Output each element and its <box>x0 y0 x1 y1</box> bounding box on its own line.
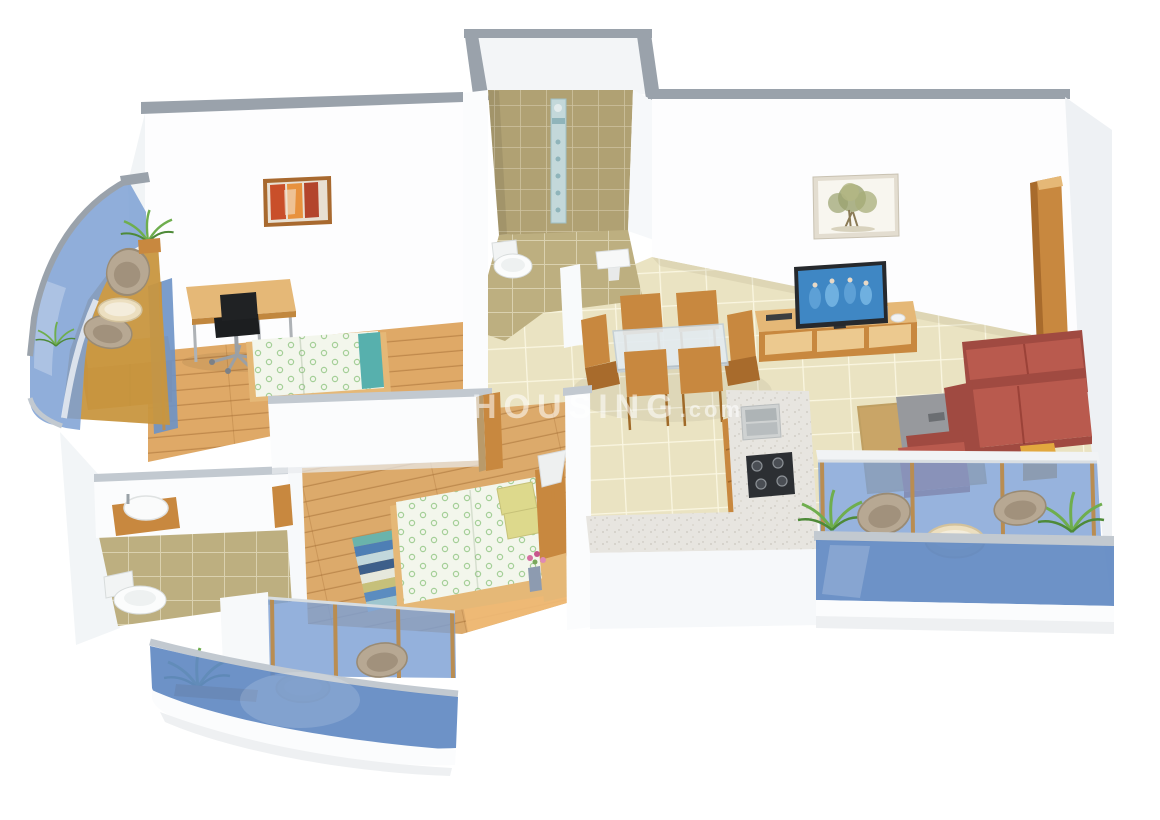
sofa <box>944 330 1092 458</box>
tree-painting <box>813 174 899 239</box>
tv <box>794 261 888 329</box>
living-wall-cap <box>648 89 1070 99</box>
balcony3-glass-sheen <box>240 672 360 728</box>
round-table <box>98 298 142 321</box>
planter-box <box>138 238 161 254</box>
shaft-north-wall <box>468 36 656 97</box>
chair-back <box>220 292 258 321</box>
bed-1 <box>246 331 391 402</box>
shaft-cap-top <box>464 29 652 38</box>
double-sink <box>741 404 781 440</box>
lower-balcony <box>150 592 458 776</box>
bowl <box>891 314 905 322</box>
shower-panel <box>551 99 566 223</box>
wall-stub-vertical <box>463 90 488 399</box>
kitchen-front-face <box>590 549 820 629</box>
bed1-teal-throw <box>358 332 384 389</box>
wall-d2 <box>268 394 494 468</box>
living-balcony <box>798 450 1114 634</box>
bathroom1-south-stub <box>560 264 584 348</box>
abstract-painting <box>263 176 332 227</box>
bathroom2-door-frame <box>272 484 293 528</box>
floor-plan-render: HOUSING.com <box>0 0 1160 820</box>
bedroom2-north-wall <box>268 388 503 474</box>
kitchen-counter-band <box>586 510 820 553</box>
gas-hob <box>746 452 795 498</box>
